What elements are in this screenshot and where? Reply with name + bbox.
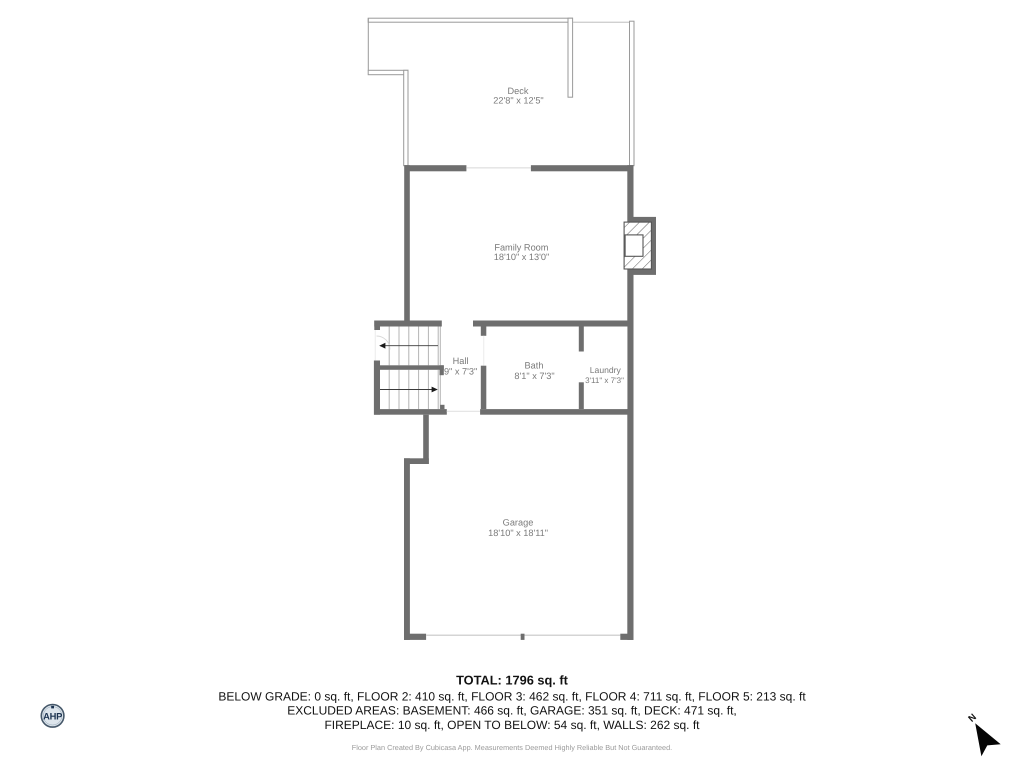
svg-text:AHP: AHP bbox=[43, 711, 62, 722]
svg-text:TOTAL: 1796 sq. ft: TOTAL: 1796 sq. ft bbox=[456, 673, 569, 688]
svg-text:Family Room: Family Room bbox=[494, 243, 548, 253]
svg-text:Hall: Hall bbox=[453, 356, 469, 366]
svg-text:3'11" x 7'3": 3'11" x 7'3" bbox=[585, 376, 624, 385]
svg-text:N: N bbox=[966, 712, 979, 725]
svg-text:FIREPLACE: 10 sq. ft, OPEN TO: FIREPLACE: 10 sq. ft, OPEN TO BELOW: 54 … bbox=[324, 718, 700, 732]
svg-text:Laundry: Laundry bbox=[590, 365, 622, 375]
svg-text:18'10" x 18'11": 18'10" x 18'11" bbox=[488, 528, 548, 538]
svg-text:EXCLUDED AREAS: BASEMENT: 466: EXCLUDED AREAS: BASEMENT: 466 sq. ft, GA… bbox=[287, 703, 737, 717]
svg-text:9" x 7'3": 9" x 7'3" bbox=[444, 366, 477, 376]
svg-text:Garage: Garage bbox=[503, 517, 534, 527]
svg-text:Deck: Deck bbox=[508, 86, 529, 96]
svg-text:Bath: Bath bbox=[525, 360, 544, 370]
svg-text:8'1" x 7'3": 8'1" x 7'3" bbox=[514, 371, 554, 381]
svg-text:BELOW GRADE: 0 sq. ft, FLOOR 2: BELOW GRADE: 0 sq. ft, FLOOR 2: 410 sq. … bbox=[218, 689, 806, 703]
svg-text:22'8" x 12'5": 22'8" x 12'5" bbox=[493, 96, 543, 106]
svg-text:18'10" x 13'0": 18'10" x 13'0" bbox=[494, 252, 550, 262]
svg-text:Floor Plan Created By Cubicasa: Floor Plan Created By Cubicasa App. Meas… bbox=[352, 743, 672, 752]
